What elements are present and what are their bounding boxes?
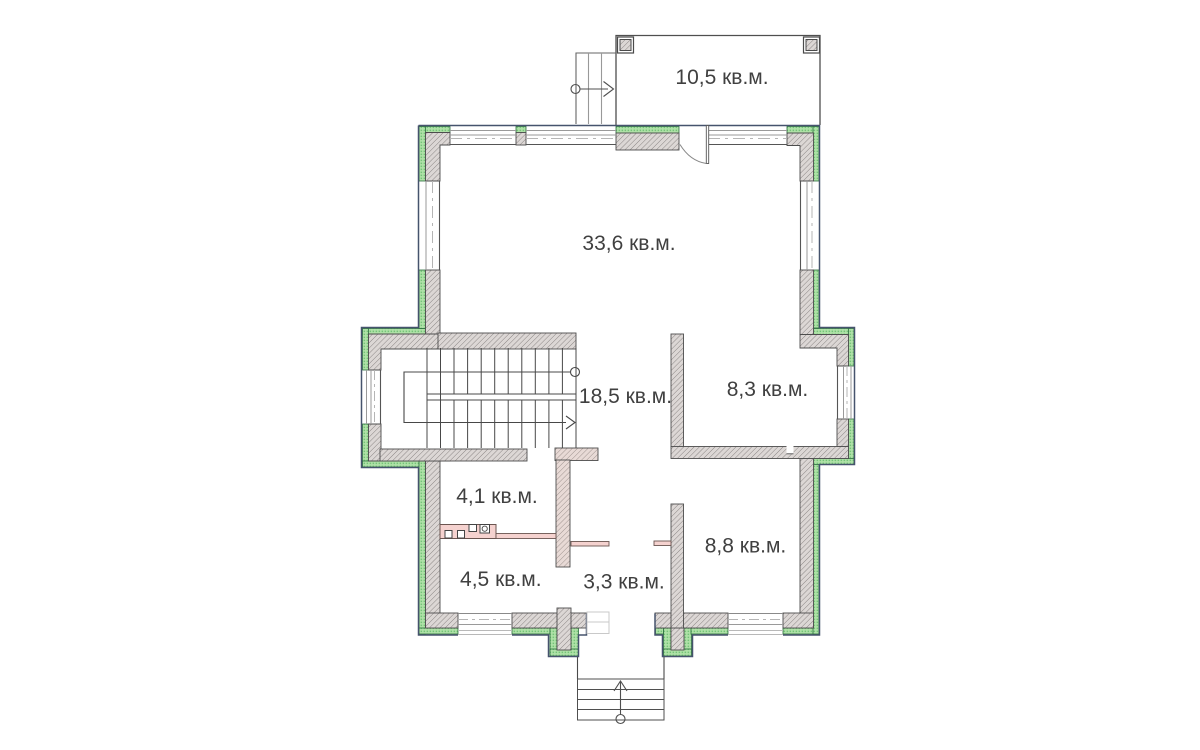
svg-text:10,5 кв.м.: 10,5 кв.м. <box>675 66 768 89</box>
svg-text:33,6 кв.м.: 33,6 кв.м. <box>582 232 675 255</box>
svg-text:4,1 кв.м.: 4,1 кв.м. <box>456 485 537 508</box>
svg-text:8,3 кв.м.: 8,3 кв.м. <box>727 378 808 401</box>
svg-text:3,3 кв.м.: 3,3 кв.м. <box>583 571 664 594</box>
svg-text:18,5 кв.м.: 18,5 кв.м. <box>579 385 672 408</box>
svg-text:4,5 кв.м.: 4,5 кв.м. <box>460 568 541 591</box>
svg-text:8,8 кв.м.: 8,8 кв.м. <box>705 535 786 558</box>
